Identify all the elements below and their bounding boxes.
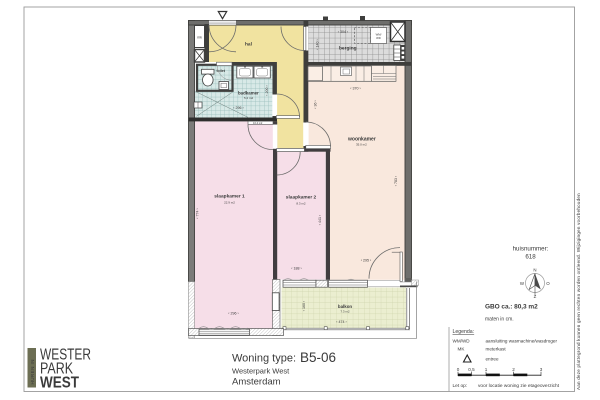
svg-text:‹ 774 ›: ‹ 774 › — [196, 208, 200, 219]
svg-text:N: N — [533, 268, 536, 273]
svg-text:‹ 441 ›: ‹ 441 › — [318, 214, 322, 225]
svg-text:22.9 m2: 22.9 m2 — [224, 200, 235, 204]
svg-text:mk: mk — [197, 35, 202, 39]
svg-text:‹ 188 ›: ‹ 188 › — [291, 267, 302, 271]
svg-text:MK: MK — [458, 347, 466, 352]
svg-text:0,5: 0,5 — [468, 367, 475, 372]
svg-text:‹ 160 ›: ‹ 160 › — [302, 300, 306, 311]
svg-text:‹ 370 ›: ‹ 370 › — [350, 87, 361, 91]
svg-text:16.4 m2: 16.4 m2 — [253, 121, 263, 125]
svg-text:O: O — [546, 281, 550, 286]
svg-text:5.2 m2: 5.2 m2 — [244, 96, 254, 100]
svg-text:balkon: balkon — [338, 304, 352, 309]
svg-text:‹ 783 ›: ‹ 783 › — [394, 175, 398, 186]
svg-text:‹ 200 ›: ‹ 200 › — [265, 85, 269, 96]
svg-text:WM/WD: WM/WD — [453, 339, 471, 344]
svg-text:Legenda:: Legenda: — [453, 329, 475, 335]
svg-text:badkamer: badkamer — [238, 91, 259, 96]
svg-text:GBO ca.: 80,3 m2: GBO ca.: 80,3 m2 — [485, 304, 538, 311]
svg-text:Aan deze plattegrond kunnen ge: Aan deze plattegrond kunnen geen rechten… — [576, 193, 581, 390]
svg-text:7.3 m2: 7.3 m2 — [340, 309, 350, 313]
svg-text:‹ 296 ›: ‹ 296 › — [228, 312, 239, 316]
svg-text:Amsterdam: Amsterdam — [232, 377, 281, 388]
svg-text:Let op:: Let op: — [453, 383, 468, 389]
svg-text:0: 0 — [457, 367, 460, 372]
svg-text:B5-06: B5-06 — [300, 350, 336, 365]
svg-text:618: 618 — [525, 254, 536, 261]
svg-text:hal: hal — [245, 42, 252, 48]
svg-text:maten in cm.: maten in cm. — [485, 317, 514, 323]
svg-text:entree: entree — [486, 357, 499, 362]
svg-text:2: 2 — [512, 367, 515, 372]
svg-text:‹ 304 ›: ‹ 304 › — [338, 30, 349, 34]
svg-text:‹ 474 ›: ‹ 474 › — [336, 320, 347, 324]
svg-text:WEST: WEST — [40, 375, 79, 392]
svg-text:35.0 m2: 35.0 m2 — [356, 142, 367, 146]
svg-text:slaapkamer 2: slaapkamer 2 — [286, 195, 317, 201]
svg-text:HUREN IN: HUREN IN — [30, 359, 35, 384]
svg-text:‹ 296 ›: ‹ 296 › — [233, 106, 244, 110]
svg-text:Z: Z — [534, 294, 537, 299]
svg-text:slaapkamer 1: slaapkamer 1 — [214, 194, 245, 200]
svg-text:meterkast: meterkast — [486, 347, 507, 352]
svg-text:Woning type:: Woning type: — [232, 353, 296, 365]
svg-text:huisnummer:: huisnummer: — [513, 246, 549, 253]
svg-text:‹ 140 ›: ‹ 140 › — [316, 39, 320, 50]
svg-text:berging: berging — [339, 46, 357, 52]
svg-text:‹ 295 ›: ‹ 295 › — [361, 259, 372, 263]
svg-text:voor locatie woning zie etageo: voor locatie woning zie etageoverzicht — [478, 383, 560, 389]
svg-text:‹ 36 ›: ‹ 36 › — [314, 100, 318, 109]
svg-text:Westerpark West: Westerpark West — [232, 367, 290, 376]
svg-text:WD: WD — [376, 36, 381, 40]
svg-text:aansluiting wasmachine/wasdrog: aansluiting wasmachine/wasdroger — [486, 339, 558, 344]
svg-text:3: 3 — [540, 367, 543, 372]
svg-text:8.3 m2: 8.3 m2 — [296, 201, 306, 205]
svg-text:1: 1 — [485, 367, 488, 372]
